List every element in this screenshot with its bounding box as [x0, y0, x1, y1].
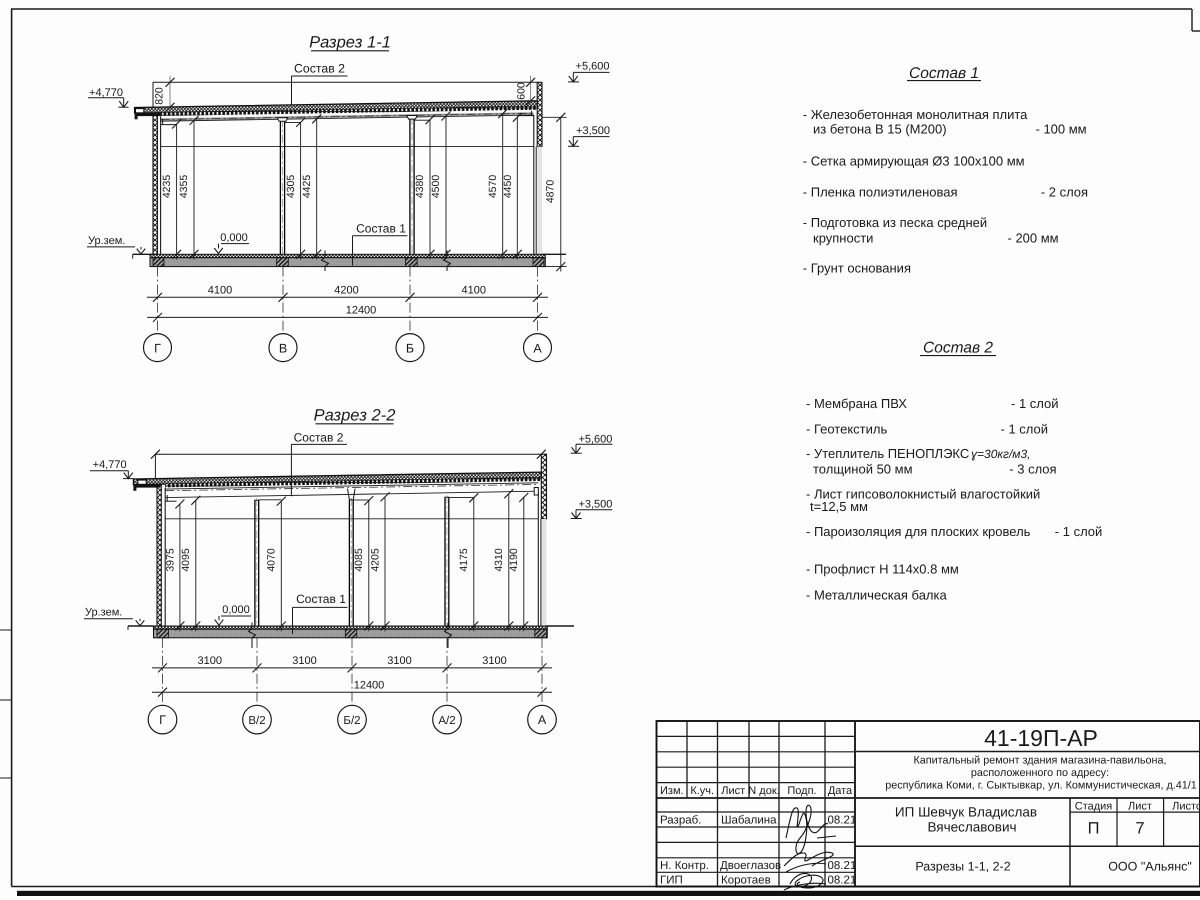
svg-text:Лист: Лист — [1128, 801, 1152, 813]
svg-text:4310: 4310 — [493, 548, 505, 572]
svg-text:Разрез 1-1: Разрез 1-1 — [309, 34, 391, 52]
svg-text:+4,770: +4,770 — [93, 459, 127, 471]
svg-text:ООО "Альянс": ООО "Альянс" — [1108, 860, 1192, 874]
svg-text:4200: 4200 — [334, 285, 358, 297]
svg-text:820: 820 — [154, 87, 166, 105]
svg-text:Ур.зем.: Ур.зем. — [85, 607, 122, 619]
svg-text:Состав 1: Состав 1 — [296, 592, 346, 606]
svg-text:- Утеплитель ПЕНОПЛЭКС: - Утеплитель ПЕНОПЛЭКС — [806, 446, 969, 461]
svg-text:4070: 4070 — [266, 548, 278, 572]
svg-text:Б: Б — [406, 341, 414, 355]
svg-text:расположенного по адресу:: расположенного по адресу: — [971, 767, 1109, 779]
svg-text:Двоеглазов: Двоеглазов — [720, 860, 781, 872]
svg-text:Г: Г — [154, 341, 161, 355]
svg-text:Изм.: Изм. — [660, 785, 684, 797]
svg-text:4205: 4205 — [369, 548, 381, 572]
svg-text:- Профлист Н 114х0.8 мм: - Профлист Н 114х0.8 мм — [806, 562, 959, 577]
svg-text:Лист: Лист — [721, 785, 745, 797]
svg-text:толщиной 50 мм: толщиной 50 мм — [813, 462, 913, 477]
svg-text:Состав 1: Состав 1 — [909, 65, 979, 82]
svg-text:Коротаев: Коротаев — [721, 875, 771, 887]
svg-text:Разрез 2-2: Разрез 2-2 — [314, 407, 396, 425]
svg-text:Подп.: Подп. — [787, 785, 816, 797]
svg-text:- Подготовка из песка средней: - Подготовка из песка средней — [803, 215, 987, 230]
svg-text:- 1 слой: - 1 слой — [1055, 524, 1103, 539]
svg-text:4425: 4425 — [301, 175, 313, 199]
svg-text:+3,500: +3,500 — [578, 499, 612, 511]
svg-text:4870: 4870 — [544, 180, 556, 204]
svg-text:08.21: 08.21 — [828, 875, 857, 887]
svg-text:П: П — [1088, 820, 1100, 838]
svg-text:- 100 мм: - 100 мм — [1036, 122, 1087, 137]
svg-text:- Пароизоляция для плоских кро: - Пароизоляция для плоских кровель — [806, 524, 1031, 539]
svg-text:- Сетка армирующая Ø3 100х100: - Сетка армирующая Ø3 100х100 мм — [803, 154, 1025, 169]
svg-text:- 200 мм: - 200 мм — [1008, 231, 1059, 246]
svg-text:А: А — [533, 341, 542, 355]
svg-text:3975: 3975 — [164, 548, 176, 572]
svg-text:+5,600: +5,600 — [576, 60, 610, 72]
svg-text:- Мембрана ПВХ: - Мембрана ПВХ — [806, 396, 907, 411]
svg-text:из бетона В 15 (М200): из бетона В 15 (М200) — [813, 122, 947, 137]
svg-text:4100: 4100 — [208, 285, 232, 297]
svg-text:+4,770: +4,770 — [89, 87, 123, 99]
svg-text:08.21: 08.21 — [828, 860, 857, 872]
svg-text:12400: 12400 — [346, 305, 377, 317]
svg-text:Разрезы 1-1, 2-2: Разрезы 1-1, 2-2 — [915, 860, 1010, 874]
svg-text:крупности: крупности — [813, 231, 873, 246]
svg-text:4095: 4095 — [180, 548, 192, 572]
svg-text:Состав 2: Состав 2 — [294, 62, 345, 76]
svg-text:- 1 слой: - 1 слой — [1011, 396, 1059, 411]
svg-text:ГИП: ГИП — [660, 875, 683, 887]
svg-text:- Грунт основания: - Грунт основания — [803, 261, 911, 276]
svg-text:ИП Шевчук Владислав: ИП Шевчук Владислав — [895, 805, 1037, 820]
svg-text:республика Коми, г. Сыктывкар,: республика Коми, г. Сыктывкар, ул. Комму… — [885, 779, 1197, 791]
svg-text:Н. Контр.: Н. Контр. — [660, 860, 709, 872]
svg-text:0,000: 0,000 — [220, 232, 248, 244]
svg-text:- 2 слоя: - 2 слоя — [1041, 185, 1088, 200]
svg-text:4380: 4380 — [414, 175, 426, 199]
svg-text:+5,600: +5,600 — [578, 433, 612, 445]
svg-text:Б/2: Б/2 — [343, 715, 360, 727]
svg-text:4500: 4500 — [430, 175, 442, 199]
svg-text:4235: 4235 — [161, 175, 173, 199]
svg-text:+3,500: +3,500 — [576, 125, 610, 137]
svg-text:3100: 3100 — [482, 655, 506, 667]
svg-text:4175: 4175 — [458, 548, 470, 572]
svg-text:600: 600 — [516, 82, 528, 100]
svg-text:t=12,5 мм: t=12,5 мм — [810, 499, 868, 514]
svg-text:4450: 4450 — [502, 175, 514, 199]
svg-text:- 1 слой: - 1 слой — [1001, 422, 1049, 437]
svg-text:- Железобетонная монолитная п: - Железобетонная монолитная плита — [803, 107, 1028, 122]
svg-text:В: В — [279, 341, 287, 355]
svg-text:Состав 1: Состав 1 — [356, 221, 406, 235]
svg-text:7: 7 — [1135, 820, 1144, 838]
svg-text:41-19П-АР: 41-19П-АР — [984, 725, 1098, 751]
svg-text:- Геотекстиль: - Геотекстиль — [806, 422, 887, 437]
svg-text:N док.: N док. — [748, 785, 779, 797]
svg-text:4100: 4100 — [462, 285, 486, 297]
svg-text:08.21: 08.21 — [828, 815, 857, 827]
svg-text:4355: 4355 — [178, 175, 190, 199]
svg-text:- Металлическая балка: - Металлическая балка — [806, 588, 947, 603]
svg-text:Капитальный ремонт здания мага: Капитальный ремонт здания магазина-павил… — [914, 755, 1167, 767]
svg-text:3100: 3100 — [198, 655, 222, 667]
svg-text:- Пленка полиэтиленовая: - Пленка полиэтиленовая — [803, 185, 958, 200]
svg-text:Состав 2: Состав 2 — [294, 431, 344, 445]
svg-text:Состав 2: Состав 2 — [923, 340, 993, 357]
svg-text:3100: 3100 — [292, 655, 316, 667]
svg-text:Разраб.: Разраб. — [660, 815, 701, 827]
svg-text:3100: 3100 — [387, 655, 411, 667]
svg-text:12400: 12400 — [354, 680, 385, 692]
svg-text:К.уч.: К.уч. — [690, 785, 714, 797]
svg-text:А: А — [538, 713, 547, 727]
svg-text:В/2: В/2 — [248, 715, 265, 727]
svg-text:Вячеславович: Вячеславович — [927, 820, 1016, 835]
svg-text:Г: Г — [159, 713, 166, 727]
svg-text:4085: 4085 — [353, 548, 365, 572]
svg-text:0,000: 0,000 — [222, 604, 250, 616]
svg-text:4305: 4305 — [285, 175, 297, 199]
svg-text:Стадия: Стадия — [1075, 801, 1113, 813]
svg-text:А/2: А/2 — [438, 715, 455, 727]
svg-text:Дата: Дата — [828, 785, 853, 797]
svg-text:Ур.зем.: Ур.зем. — [88, 235, 125, 247]
svg-text:ɣ=30кг/м3,: ɣ=30кг/м3, — [971, 447, 1031, 461]
svg-text:4190: 4190 — [508, 548, 520, 572]
svg-text:Листов: Листов — [1172, 801, 1200, 813]
svg-text:- 3 слоя: - 3 слоя — [1009, 462, 1056, 477]
svg-text:4570: 4570 — [487, 175, 499, 199]
svg-text:Шабалина: Шабалина — [721, 815, 777, 827]
